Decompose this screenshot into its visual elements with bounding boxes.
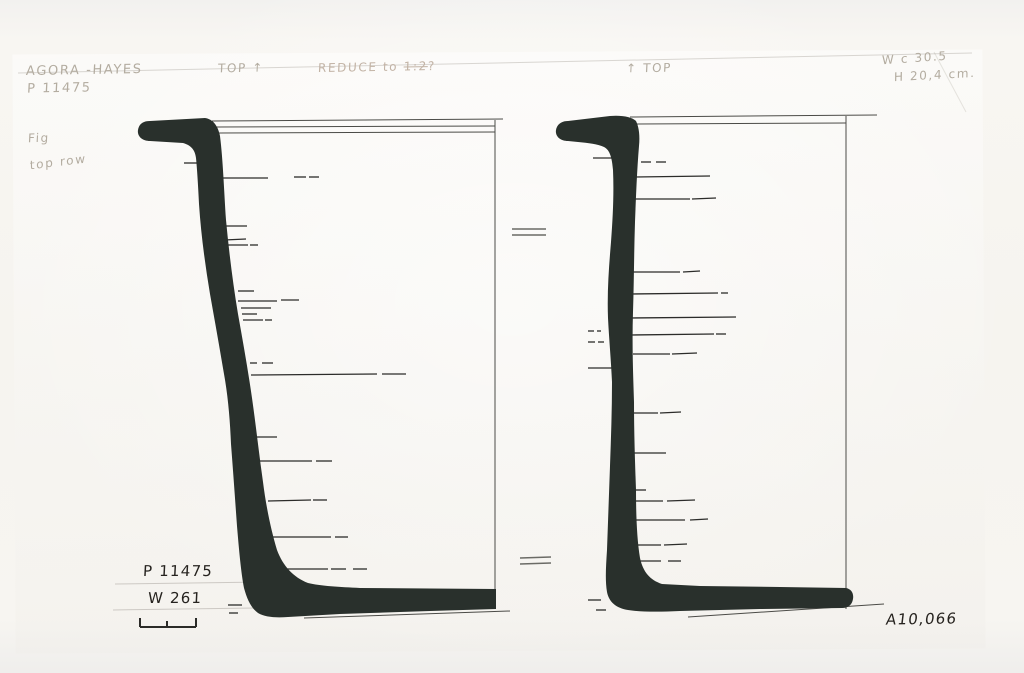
fig-annotation: Fig xyxy=(28,132,50,146)
left-vessel-section-profile xyxy=(138,118,496,617)
catalog-annotation-pencil: P 11475 xyxy=(27,81,92,96)
equals-mark-upper xyxy=(512,229,546,235)
right-vessel-section-profile xyxy=(556,116,853,612)
scale-bar xyxy=(140,618,196,627)
photo-number-label: A10,066 xyxy=(885,610,958,628)
site-annotation: AGORA -HAYES xyxy=(26,63,143,79)
reduce-suffix: ? xyxy=(427,59,436,73)
reduce-prefix: REDUCE to xyxy=(318,60,404,75)
secondary-number-label: W 261 xyxy=(148,590,203,607)
reduce-annotation: REDUCE to 1:2? xyxy=(318,60,437,75)
paper-edge-lines xyxy=(18,52,972,112)
top-marker-right: ↑ TOP xyxy=(626,62,673,76)
equals-mark-lower xyxy=(520,557,551,564)
reduce-scale: 1:2 xyxy=(403,59,428,73)
right-profile-drawing xyxy=(556,115,884,617)
drawing-sheet: AGORA -HAYES P 11475 TOP ↑ REDUCE to 1:2… xyxy=(0,0,1024,673)
catalog-number-label: P 11475 xyxy=(143,563,214,580)
top-marker-left: TOP ↑ xyxy=(218,62,265,76)
left-profile-drawing xyxy=(138,118,510,618)
right-rim-and-axis-lines xyxy=(630,115,884,617)
